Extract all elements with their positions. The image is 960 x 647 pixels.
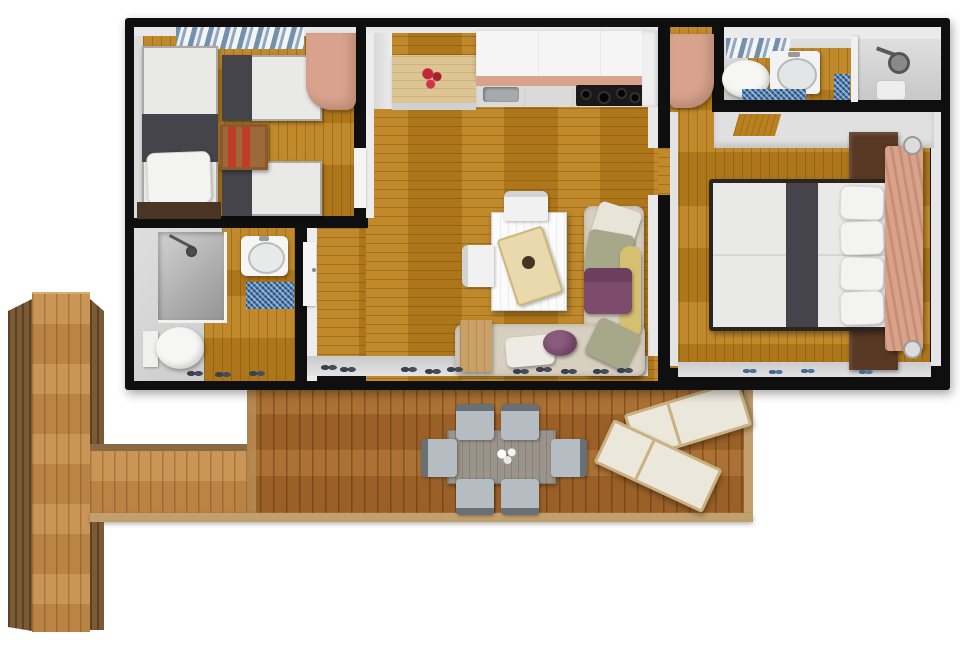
sofa-side-table: [460, 320, 492, 372]
master-closet-wood-inset: [733, 114, 781, 136]
walkway-strip: [90, 451, 247, 513]
shower-ensuite-head: [888, 52, 910, 74]
bathroom-door: [303, 242, 316, 306]
washbasin-left-bowl: [248, 242, 285, 274]
shoes-pair: [616, 367, 633, 374]
outdoor-chair-south-2: [501, 479, 539, 515]
dining-chair-left: [462, 245, 494, 287]
walkway-deck: [32, 292, 90, 632]
walkway-right-side-panel-upper: [90, 299, 104, 450]
outdoor-chair-south-1: [456, 479, 494, 515]
outdoor-chair-north-2: [501, 404, 539, 440]
master-pillow-4: [839, 290, 884, 326]
bath-mat-ensuite-2: [834, 74, 850, 100]
table-flower-centerpiece: [494, 446, 520, 466]
bath-mat-left: [246, 282, 294, 309]
bedroom-wardrobe: [306, 33, 356, 110]
outdoor-chair-west: [421, 439, 457, 477]
kitchen-tall-cabinet: [642, 31, 658, 107]
doorway-floor-patch: [658, 148, 670, 195]
wall-living-master-upper: [658, 18, 670, 148]
wall-living-master-lower: [658, 195, 670, 390]
kitchen-sink: [483, 87, 519, 102]
lounger-backrest-divider: [667, 404, 682, 445]
dining-chair-top: [504, 191, 548, 221]
shoes-pair: [446, 366, 463, 373]
bedroom-door: [354, 148, 366, 208]
walkway-strip-top-edge: [90, 444, 247, 451]
deck-left-edge: [247, 390, 256, 514]
kitchen-counter-front: [392, 103, 476, 110]
purple-pouf: [543, 330, 577, 356]
master-west-wall-face: [670, 112, 678, 366]
washbasin-left-faucet: [259, 236, 269, 241]
shoes-pair: [592, 368, 609, 375]
walkway-left-side-panel: [8, 299, 32, 631]
cooktop: [576, 85, 643, 106]
shoes-pair: [248, 370, 265, 377]
wall-lamp-top: [903, 136, 922, 155]
double-bed-runner: [786, 183, 818, 327]
shoes-pair: [339, 366, 356, 373]
shoes-pair: [186, 370, 203, 377]
living-room-floor-ext: [317, 228, 366, 356]
wall-ensuite-bottom: [712, 100, 950, 112]
living-east-wall-face-lower: [648, 195, 658, 356]
washbasin-ensuite-faucet: [788, 52, 800, 57]
master-pillow-3: [839, 256, 884, 292]
master-pillow-2: [839, 220, 884, 256]
master-headboard: [885, 146, 923, 351]
lounger-backrest-divider: [635, 440, 655, 479]
toilet-left-bowl: [156, 327, 204, 369]
deck-front-edge: [90, 513, 753, 522]
shower-head-icon: [186, 246, 197, 257]
living-west-wall-face: [366, 33, 374, 218]
shoes-pair: [424, 368, 441, 375]
slippers-pair: [742, 368, 757, 374]
floor-plan-scene: [0, 0, 960, 647]
shoes-pair: [400, 366, 417, 373]
outdoor-chair-north-1: [456, 404, 494, 440]
single-bed-right-top-runner: [222, 55, 252, 121]
shoes-pair: [535, 366, 552, 373]
slippers-pair: [800, 368, 815, 374]
shoes-pair: [320, 364, 337, 371]
shoes-pair: [512, 368, 529, 375]
bathroom-door-handle: [312, 268, 316, 272]
red-bookshelf: [220, 124, 268, 170]
master-east-wall-face: [931, 112, 941, 366]
shoes-pair: [214, 371, 231, 378]
master-pillow-1: [839, 185, 884, 221]
shower-ensuite-tray: [876, 80, 906, 100]
single-bed-left-headboard: [137, 202, 221, 219]
kitchen-wall-cabinets: [476, 31, 658, 76]
cushion-purple: [584, 268, 632, 314]
wall-lamp-bottom: [903, 340, 922, 359]
slippers-pair: [768, 369, 783, 375]
slippers-pair: [858, 369, 873, 375]
master-wardrobe: [670, 34, 714, 108]
walkway-right-side-panel-lower: [90, 522, 104, 630]
single-bed-left-pillow: [146, 151, 212, 205]
bath-mat-ensuite-1: [742, 89, 806, 100]
tray-bowl: [522, 256, 535, 269]
red-flowers: [418, 64, 446, 92]
washbasin-ensuite-bowl: [777, 58, 817, 92]
shoes-pair: [560, 368, 577, 375]
outdoor-chair-east: [551, 439, 587, 477]
shower-divider: [851, 36, 858, 102]
